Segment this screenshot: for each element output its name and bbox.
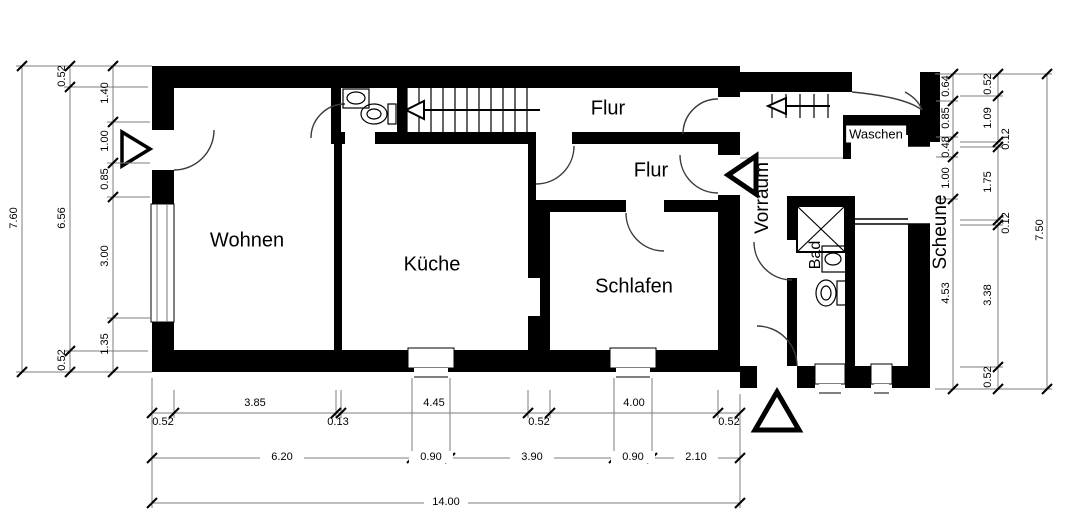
window-left	[151, 204, 174, 322]
dim-right-total: 7.50	[1034, 208, 1046, 252]
door-arc-landing	[536, 146, 574, 184]
dim-right-middle-5: 3.38	[982, 273, 994, 317]
dim-bottom-row2-1: 0.90	[409, 451, 453, 463]
dim-left-inner-4: 1.35	[99, 322, 111, 366]
window-bad-bottom	[815, 364, 845, 393]
dim-right-middle-4: 0.12	[1000, 201, 1012, 245]
wc-toilet-icon	[361, 104, 396, 124]
floor-plan: Wohnen Küche Schlafen Flur Flur Vorraum …	[0, 0, 1068, 520]
annex-staircase	[740, 94, 843, 158]
door-arc-schlafen	[626, 213, 664, 251]
dim-left-inner-2: 0.85	[99, 157, 111, 201]
dim-bottom-row1-6: 0.52	[707, 416, 751, 428]
room-label-bad: Bad	[807, 241, 825, 269]
dim-bottom-row2-4: 2.10	[674, 451, 718, 463]
bad-toilet-icon	[816, 280, 846, 306]
dim-right-middle-2: 0.12	[1000, 117, 1012, 161]
room-label-flur-lower: Flur	[634, 160, 668, 183]
room-label-vorraum: Vorraum	[752, 162, 774, 234]
dim-left-inner-3: 3.00	[99, 234, 111, 278]
room-label-wohnen: Wohnen	[210, 230, 284, 253]
window-corridor-bottom	[871, 364, 892, 393]
dim-left-total: 7.60	[8, 196, 20, 240]
scheune-door-jambs	[851, 146, 930, 224]
window-kueche-bottom	[408, 348, 454, 377]
dim-right-middle-1: 1.09	[982, 96, 994, 140]
dim-bottom-row2-2: 3.90	[510, 451, 554, 463]
dim-bottom-total: 14.00	[424, 496, 468, 508]
dim-right-inner-4: 4.53	[940, 271, 952, 315]
dim-bottom-row1-2: 0.13	[316, 416, 360, 428]
dim-left-outer-1: 6.56	[56, 196, 68, 240]
dim-bottom-row1-4: 0.52	[517, 416, 561, 428]
entrance-arrow-left-icon	[122, 132, 150, 166]
dim-bottom-row1-3: 4.45	[412, 397, 456, 409]
door-arc-bad	[754, 242, 792, 280]
door-arc-annex-entry	[852, 92, 922, 110]
dim-bottom-row1-0: 0.52	[141, 416, 185, 428]
dim-left-inner-0: 1.40	[99, 71, 111, 115]
door-arc-entrance-left	[174, 130, 214, 170]
room-label-scheune: Scheune	[930, 194, 952, 269]
annex-stair-direction-arrow-icon	[768, 98, 830, 114]
floor-plan-drawing	[0, 0, 1068, 520]
door-arc-flur-upper-east	[683, 99, 718, 134]
room-label-flur-upper: Flur	[591, 98, 625, 121]
dim-right-middle-6: 0.52	[982, 355, 994, 399]
dim-bottom-row1-1: 3.85	[233, 397, 277, 409]
walls	[152, 66, 940, 388]
entrance-arrow-bottom-icon	[755, 392, 799, 430]
dim-bottom-row2-3: 0.90	[611, 451, 655, 463]
room-label-kueche: Küche	[404, 254, 461, 277]
entrance-arrows	[122, 132, 799, 430]
dim-bottom-row1-5: 4.00	[612, 397, 656, 409]
room-label-waschen: Waschen	[846, 126, 906, 143]
room-label-schlafen: Schlafen	[595, 276, 673, 299]
wall-niche	[528, 278, 540, 316]
door-arc-annex-entry-leaf	[905, 92, 922, 110]
main-stair-direction-arrow-icon	[406, 101, 540, 119]
dim-bottom-row2-0: 6.20	[260, 451, 304, 463]
wc-sink-icon	[343, 89, 369, 108]
dim-left-outer-0: 0.52	[56, 54, 68, 98]
door-arc-flur-vorraum	[680, 155, 718, 193]
dim-right-inner-3: 1.00	[940, 156, 952, 200]
dim-right-middle-3: 1.75	[982, 160, 994, 204]
window-schlafen-bottom	[610, 348, 656, 377]
dim-left-outer-2: 0.52	[56, 338, 68, 382]
